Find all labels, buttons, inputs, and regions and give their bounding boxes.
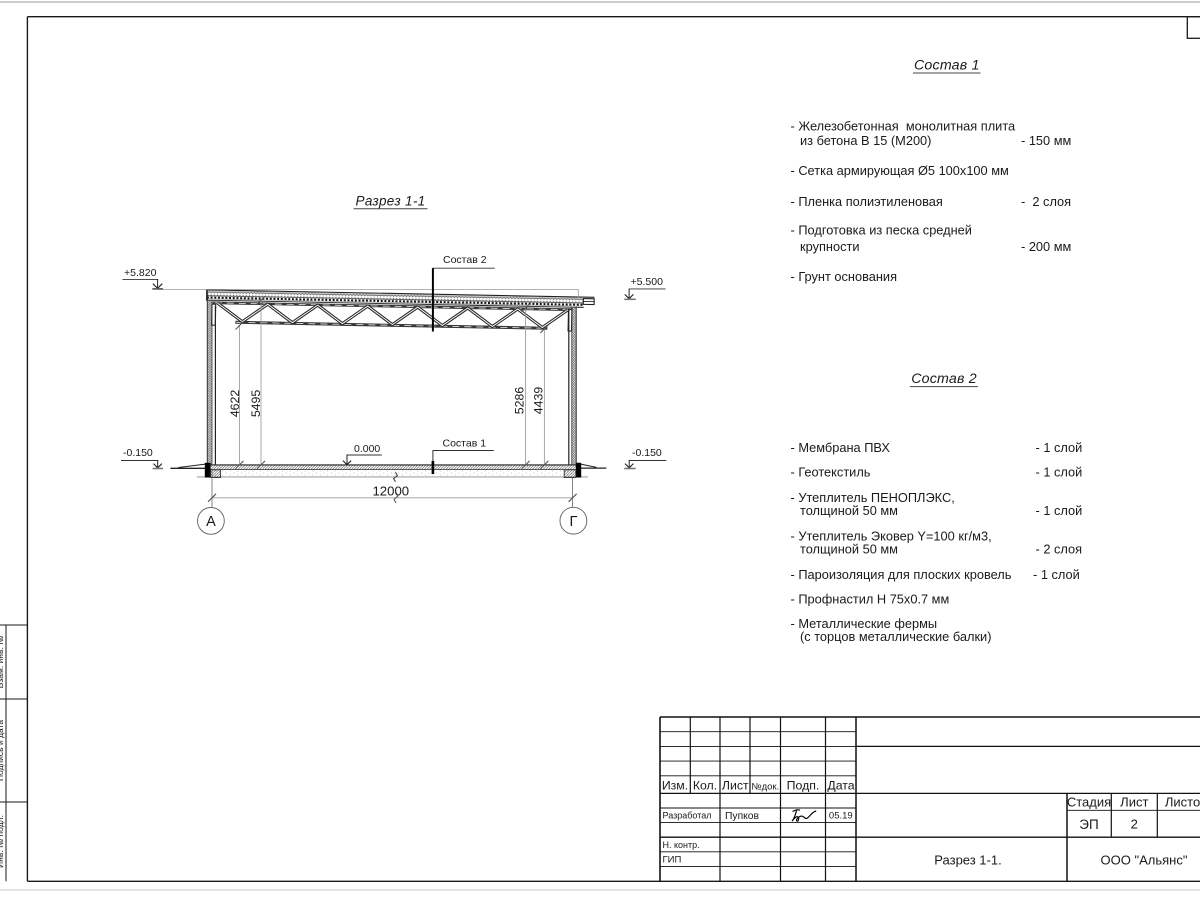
svg-text:Разрез 1-1.: Разрез 1-1. [934, 852, 1001, 867]
svg-text:- 150 мм: - 150 мм [1021, 133, 1071, 148]
svg-text:Кол.: Кол. [693, 779, 717, 793]
svg-text:- Пленка полиэтиленовая: - Пленка полиэтиленовая [791, 194, 943, 209]
svg-text:0.000: 0.000 [354, 443, 380, 455]
svg-text:Взам. инв. №: Взам. инв. № [0, 636, 5, 689]
svg-text:ГИП: ГИП [663, 854, 682, 865]
svg-text:5495: 5495 [249, 390, 263, 418]
svg-text:- 1 слой: - 1 слой [1036, 440, 1083, 455]
svg-text:-0.150: -0.150 [123, 447, 153, 459]
svg-text:- Подготовка из песка средней: - Подготовка из песка средней [791, 223, 972, 238]
svg-text:- 2 слоя: - 2 слоя [1036, 541, 1083, 556]
svg-text:толщиной 50 мм: толщиной 50 мм [800, 541, 898, 556]
svg-text:- Пароизоляция для плоских кро: - Пароизоляция для плоских кровель [791, 567, 1012, 582]
svg-text:2: 2 [1131, 817, 1138, 832]
svg-text:- Железобетонная монолитная п: - Железобетонная монолитная плита [791, 119, 1017, 134]
svg-text:- 1 слой: - 1 слой [1033, 567, 1080, 582]
svg-text:- 200 мм: - 200 мм [1021, 239, 1071, 254]
svg-text:Разрез 1-1: Разрез 1-1 [356, 194, 426, 209]
svg-text:Состав 2: Состав 2 [443, 254, 487, 266]
svg-text:Состав 2: Состав 2 [911, 371, 977, 387]
svg-text:А: А [206, 514, 216, 530]
svg-text:(с торцов металлические балки): (с торцов металлические балки) [800, 629, 991, 644]
svg-text:- 1 слой: - 1 слой [1036, 503, 1083, 518]
svg-text:Подпись и дата: Подпись и дата [0, 720, 5, 781]
svg-text:- Грунт основания: - Грунт основания [791, 269, 898, 284]
svg-text:Лист: Лист [722, 779, 749, 793]
svg-text:Стадия: Стадия [1067, 794, 1111, 809]
svg-text:крупности: крупности [800, 239, 860, 254]
svg-text:- 2 слоя: - 2 слоя [1021, 194, 1071, 209]
svg-text:4622: 4622 [228, 390, 242, 418]
svg-text:4439: 4439 [532, 387, 546, 415]
svg-text:Состав 1: Состав 1 [443, 437, 487, 449]
svg-text:+5.500: +5.500 [631, 276, 664, 288]
svg-text:ЭП: ЭП [1079, 817, 1098, 832]
svg-text:Листов: Листов [1165, 794, 1200, 809]
svg-text:толщиной 50 мм: толщиной 50 мм [800, 503, 898, 518]
svg-text:Подп.: Подп. [787, 779, 820, 793]
svg-text:12000: 12000 [372, 483, 409, 498]
svg-text:- Мембрана ПВХ: - Мембрана ПВХ [791, 440, 891, 455]
svg-text:+5.820: +5.820 [124, 267, 157, 279]
svg-text:Состав 1: Состав 1 [914, 58, 980, 74]
svg-text:из бетона В 15 (М200): из бетона В 15 (М200) [800, 133, 931, 148]
svg-text:Дата: Дата [827, 779, 854, 793]
svg-text:Разработал: Разработал [663, 810, 712, 820]
svg-text:Н. контр.: Н. контр. [663, 840, 700, 850]
svg-text:- Сетка армирующая Ø5 100x100: - Сетка армирующая Ø5 100x100 мм [791, 163, 1009, 178]
svg-text:5286: 5286 [513, 387, 527, 415]
svg-text:Лист: Лист [1120, 794, 1148, 809]
svg-text:- Профнастил Н 75x0.7 мм: - Профнастил Н 75x0.7 мм [791, 592, 950, 607]
svg-text:- 1 слой: - 1 слой [1036, 465, 1083, 480]
svg-text:ООО "Альянс": ООО "Альянс" [1101, 852, 1188, 867]
svg-text:Изм.: Изм. [662, 779, 688, 793]
svg-text:05.19: 05.19 [829, 811, 853, 822]
svg-text:№док.: №док. [751, 781, 779, 792]
svg-text:Г: Г [569, 514, 577, 530]
svg-text:Пупков: Пупков [725, 811, 759, 822]
svg-text:Инв. № подл.: Инв. № подл. [0, 815, 5, 868]
svg-text:-0.150: -0.150 [632, 447, 662, 459]
svg-text:- Геотекстиль: - Геотекстиль [791, 465, 871, 480]
